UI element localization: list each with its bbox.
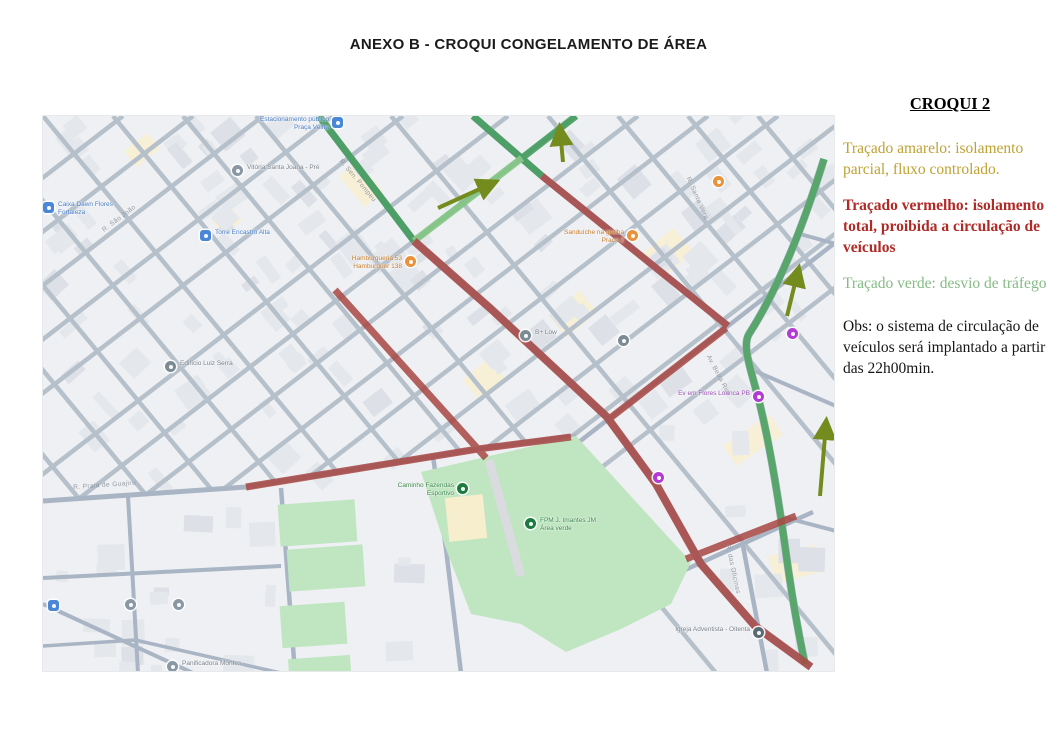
legend-panel: CROQUI 2 Traçado amarelo: isolamento par… [843,93,1057,394]
map-svg [43,116,835,672]
document-page: ANEXO B - CROQUI CONGELAMENTO DE ÁREA [0,0,1057,746]
croqui-map: Estacionamento públicoPraça VelhaVitória… [42,115,835,672]
legend-obs: Obs: o sistema de circulação de veículos… [843,316,1057,379]
park-building [445,494,487,542]
legend-item-green: Traçado verde: desvio de tráfego [843,273,1057,294]
legend-item-red: Traçado vermelho: isolamento total, proi… [843,195,1057,258]
page-title: ANEXO B - CROQUI CONGELAMENTO DE ÁREA [0,36,1057,53]
legend-item-yellow: Traçado amarelo: isolamento parcial, flu… [843,138,1057,180]
legend-heading: CROQUI 2 [843,93,1057,114]
